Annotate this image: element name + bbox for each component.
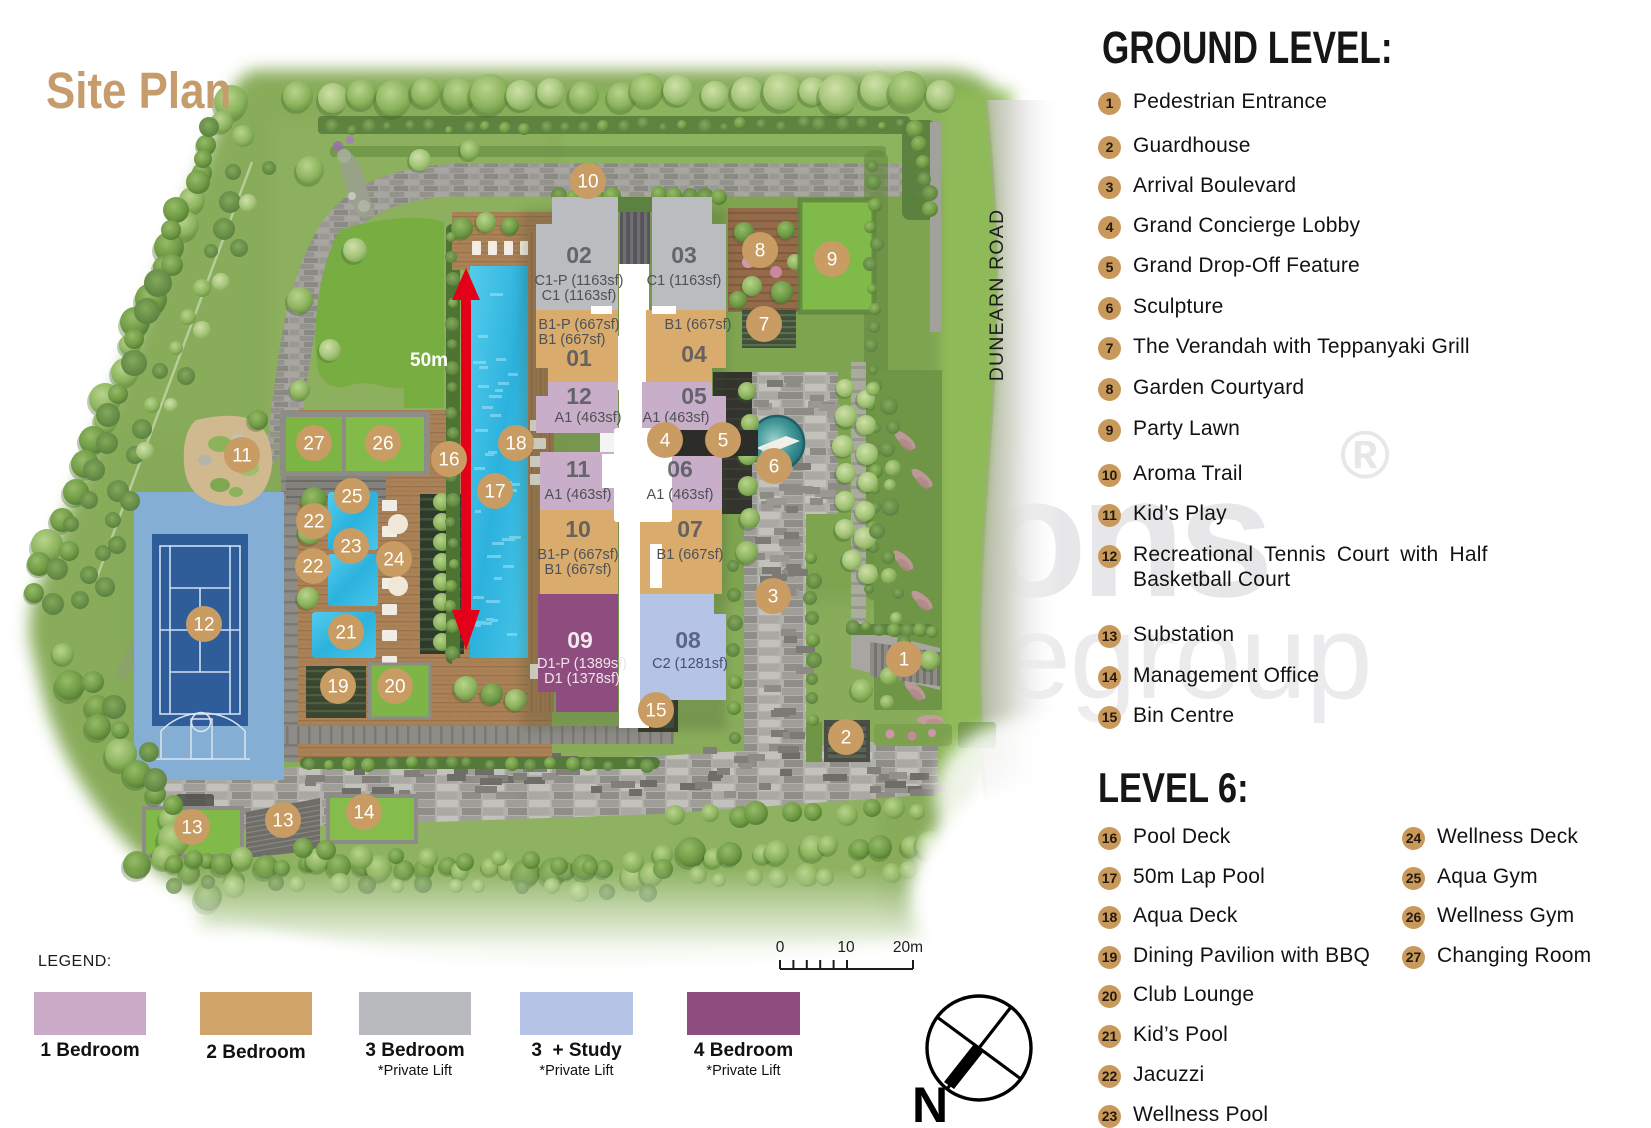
svg-text:02: 02 bbox=[566, 242, 592, 268]
svg-text:23: 23 bbox=[340, 537, 361, 558]
svg-text:D1-P (1389sf): D1-P (1389sf) bbox=[537, 656, 627, 672]
svg-text:12: 12 bbox=[566, 383, 592, 409]
svg-text:A1 (463sf): A1 (463sf) bbox=[555, 410, 622, 426]
svg-text:18: 18 bbox=[505, 434, 526, 455]
svg-text:0: 0 bbox=[776, 939, 785, 956]
svg-text:C1 (1163sf): C1 (1163sf) bbox=[542, 288, 617, 304]
svg-text:A1 (463sf): A1 (463sf) bbox=[643, 410, 710, 426]
svg-text:C1-P (1163sf): C1-P (1163sf) bbox=[535, 273, 624, 289]
svg-text:D1 (1378sf): D1 (1378sf) bbox=[544, 671, 620, 687]
svg-text:16: 16 bbox=[438, 450, 459, 471]
svg-text:13: 13 bbox=[272, 811, 293, 832]
svg-text:B1 (667sf): B1 (667sf) bbox=[665, 317, 732, 333]
svg-text:4: 4 bbox=[660, 431, 671, 452]
svg-text:8: 8 bbox=[755, 241, 766, 262]
svg-text:08: 08 bbox=[675, 627, 701, 653]
svg-text:2: 2 bbox=[841, 728, 852, 749]
svg-text:A1 (463sf): A1 (463sf) bbox=[647, 487, 714, 503]
svg-text:20m: 20m bbox=[893, 939, 923, 956]
svg-text:9: 9 bbox=[827, 250, 838, 271]
svg-text:06: 06 bbox=[667, 456, 693, 482]
svg-text:15: 15 bbox=[645, 701, 666, 722]
svg-text:14: 14 bbox=[353, 803, 375, 824]
svg-text:12: 12 bbox=[193, 615, 214, 636]
svg-text:13: 13 bbox=[181, 818, 202, 839]
svg-text:5: 5 bbox=[718, 431, 729, 452]
svg-text:27: 27 bbox=[303, 434, 324, 455]
svg-text:50m: 50m bbox=[410, 350, 448, 371]
svg-text:10: 10 bbox=[565, 516, 591, 542]
svg-text:09: 09 bbox=[567, 627, 593, 653]
svg-text:C1 (1163sf): C1 (1163sf) bbox=[647, 273, 722, 289]
svg-text:21: 21 bbox=[335, 623, 356, 644]
svg-text:10: 10 bbox=[577, 172, 598, 193]
svg-text:05: 05 bbox=[681, 383, 707, 409]
svg-text:19: 19 bbox=[327, 677, 348, 698]
svg-text:B1-P (667sf): B1-P (667sf) bbox=[538, 317, 619, 333]
svg-text:10: 10 bbox=[837, 939, 855, 956]
svg-text:11: 11 bbox=[232, 446, 252, 467]
svg-text:A1 (463sf): A1 (463sf) bbox=[545, 487, 612, 503]
svg-text:11: 11 bbox=[566, 456, 591, 482]
svg-text:20: 20 bbox=[384, 677, 405, 698]
svg-text:01: 01 bbox=[566, 345, 592, 371]
svg-text:22: 22 bbox=[302, 557, 323, 578]
svg-text:7: 7 bbox=[759, 315, 770, 336]
svg-text:03: 03 bbox=[671, 242, 697, 268]
svg-text:B1 (667sf): B1 (667sf) bbox=[657, 547, 724, 563]
svg-text:1: 1 bbox=[899, 650, 910, 671]
svg-text:07: 07 bbox=[677, 516, 703, 542]
svg-text:B1 (667sf): B1 (667sf) bbox=[545, 562, 612, 578]
svg-text:C2 (1281sf): C2 (1281sf) bbox=[652, 656, 728, 672]
svg-text:26: 26 bbox=[372, 434, 393, 455]
svg-text:B1-P (667sf): B1-P (667sf) bbox=[537, 547, 618, 563]
svg-text:24: 24 bbox=[383, 550, 405, 571]
svg-text:17: 17 bbox=[484, 482, 505, 503]
svg-text:®: ® bbox=[1340, 417, 1390, 493]
svg-text:25: 25 bbox=[341, 487, 362, 508]
svg-text:3: 3 bbox=[768, 587, 779, 608]
svg-text:N: N bbox=[912, 1077, 948, 1128]
svg-text:6: 6 bbox=[769, 457, 780, 478]
svg-text:04: 04 bbox=[681, 341, 707, 367]
svg-text:22: 22 bbox=[303, 512, 324, 533]
svg-text:DUNEARN ROAD: DUNEARN ROAD bbox=[986, 209, 1008, 382]
